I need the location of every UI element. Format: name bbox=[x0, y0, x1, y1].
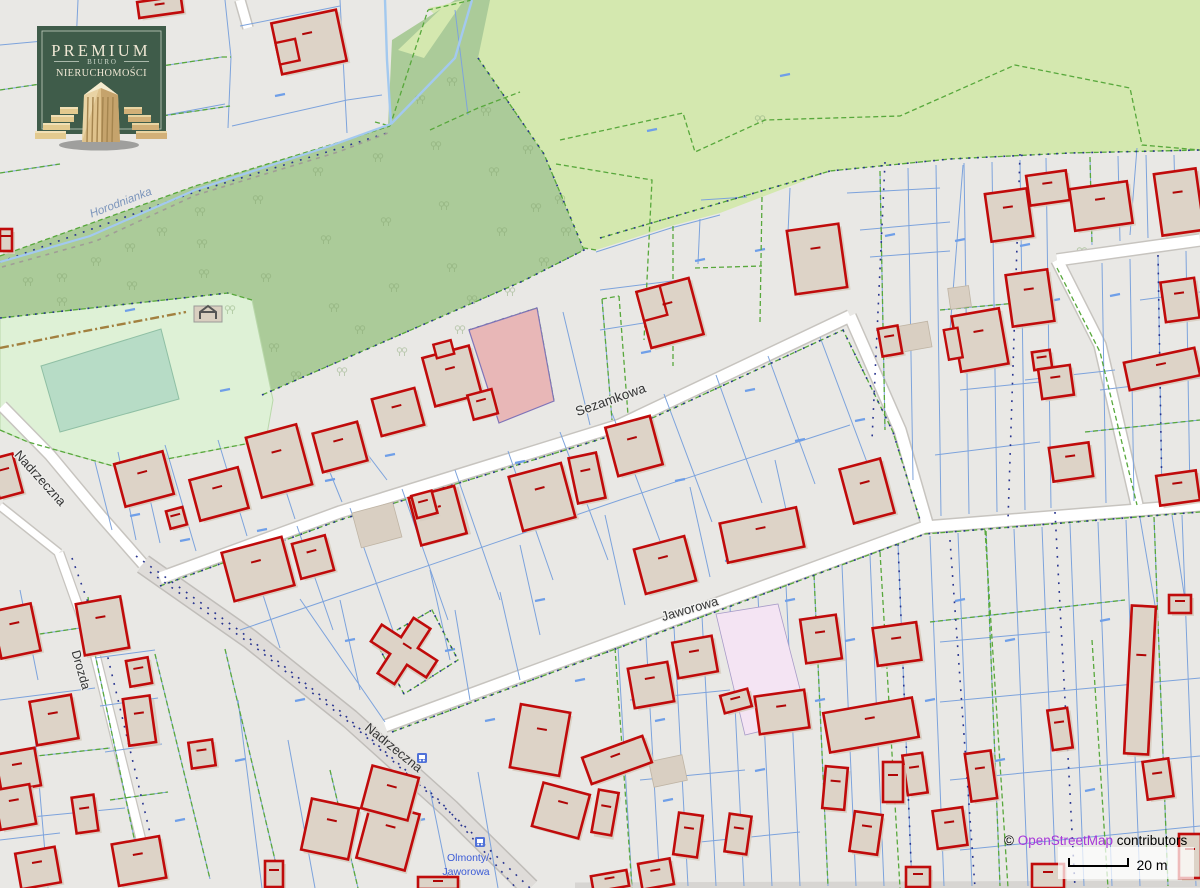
svg-text:Olmonty/: Olmonty/ bbox=[447, 852, 489, 864]
svg-text:20 m: 20 m bbox=[1136, 857, 1167, 873]
svg-text:B I U R O: B I U R O bbox=[87, 58, 116, 66]
svg-text:© OpenStreetMap contributors: © OpenStreetMap contributors bbox=[1004, 833, 1188, 848]
svg-text:Jaworowa: Jaworowa bbox=[442, 866, 489, 878]
svg-text:NIERUCHOMOŚCI: NIERUCHOMOŚCI bbox=[56, 67, 147, 79]
